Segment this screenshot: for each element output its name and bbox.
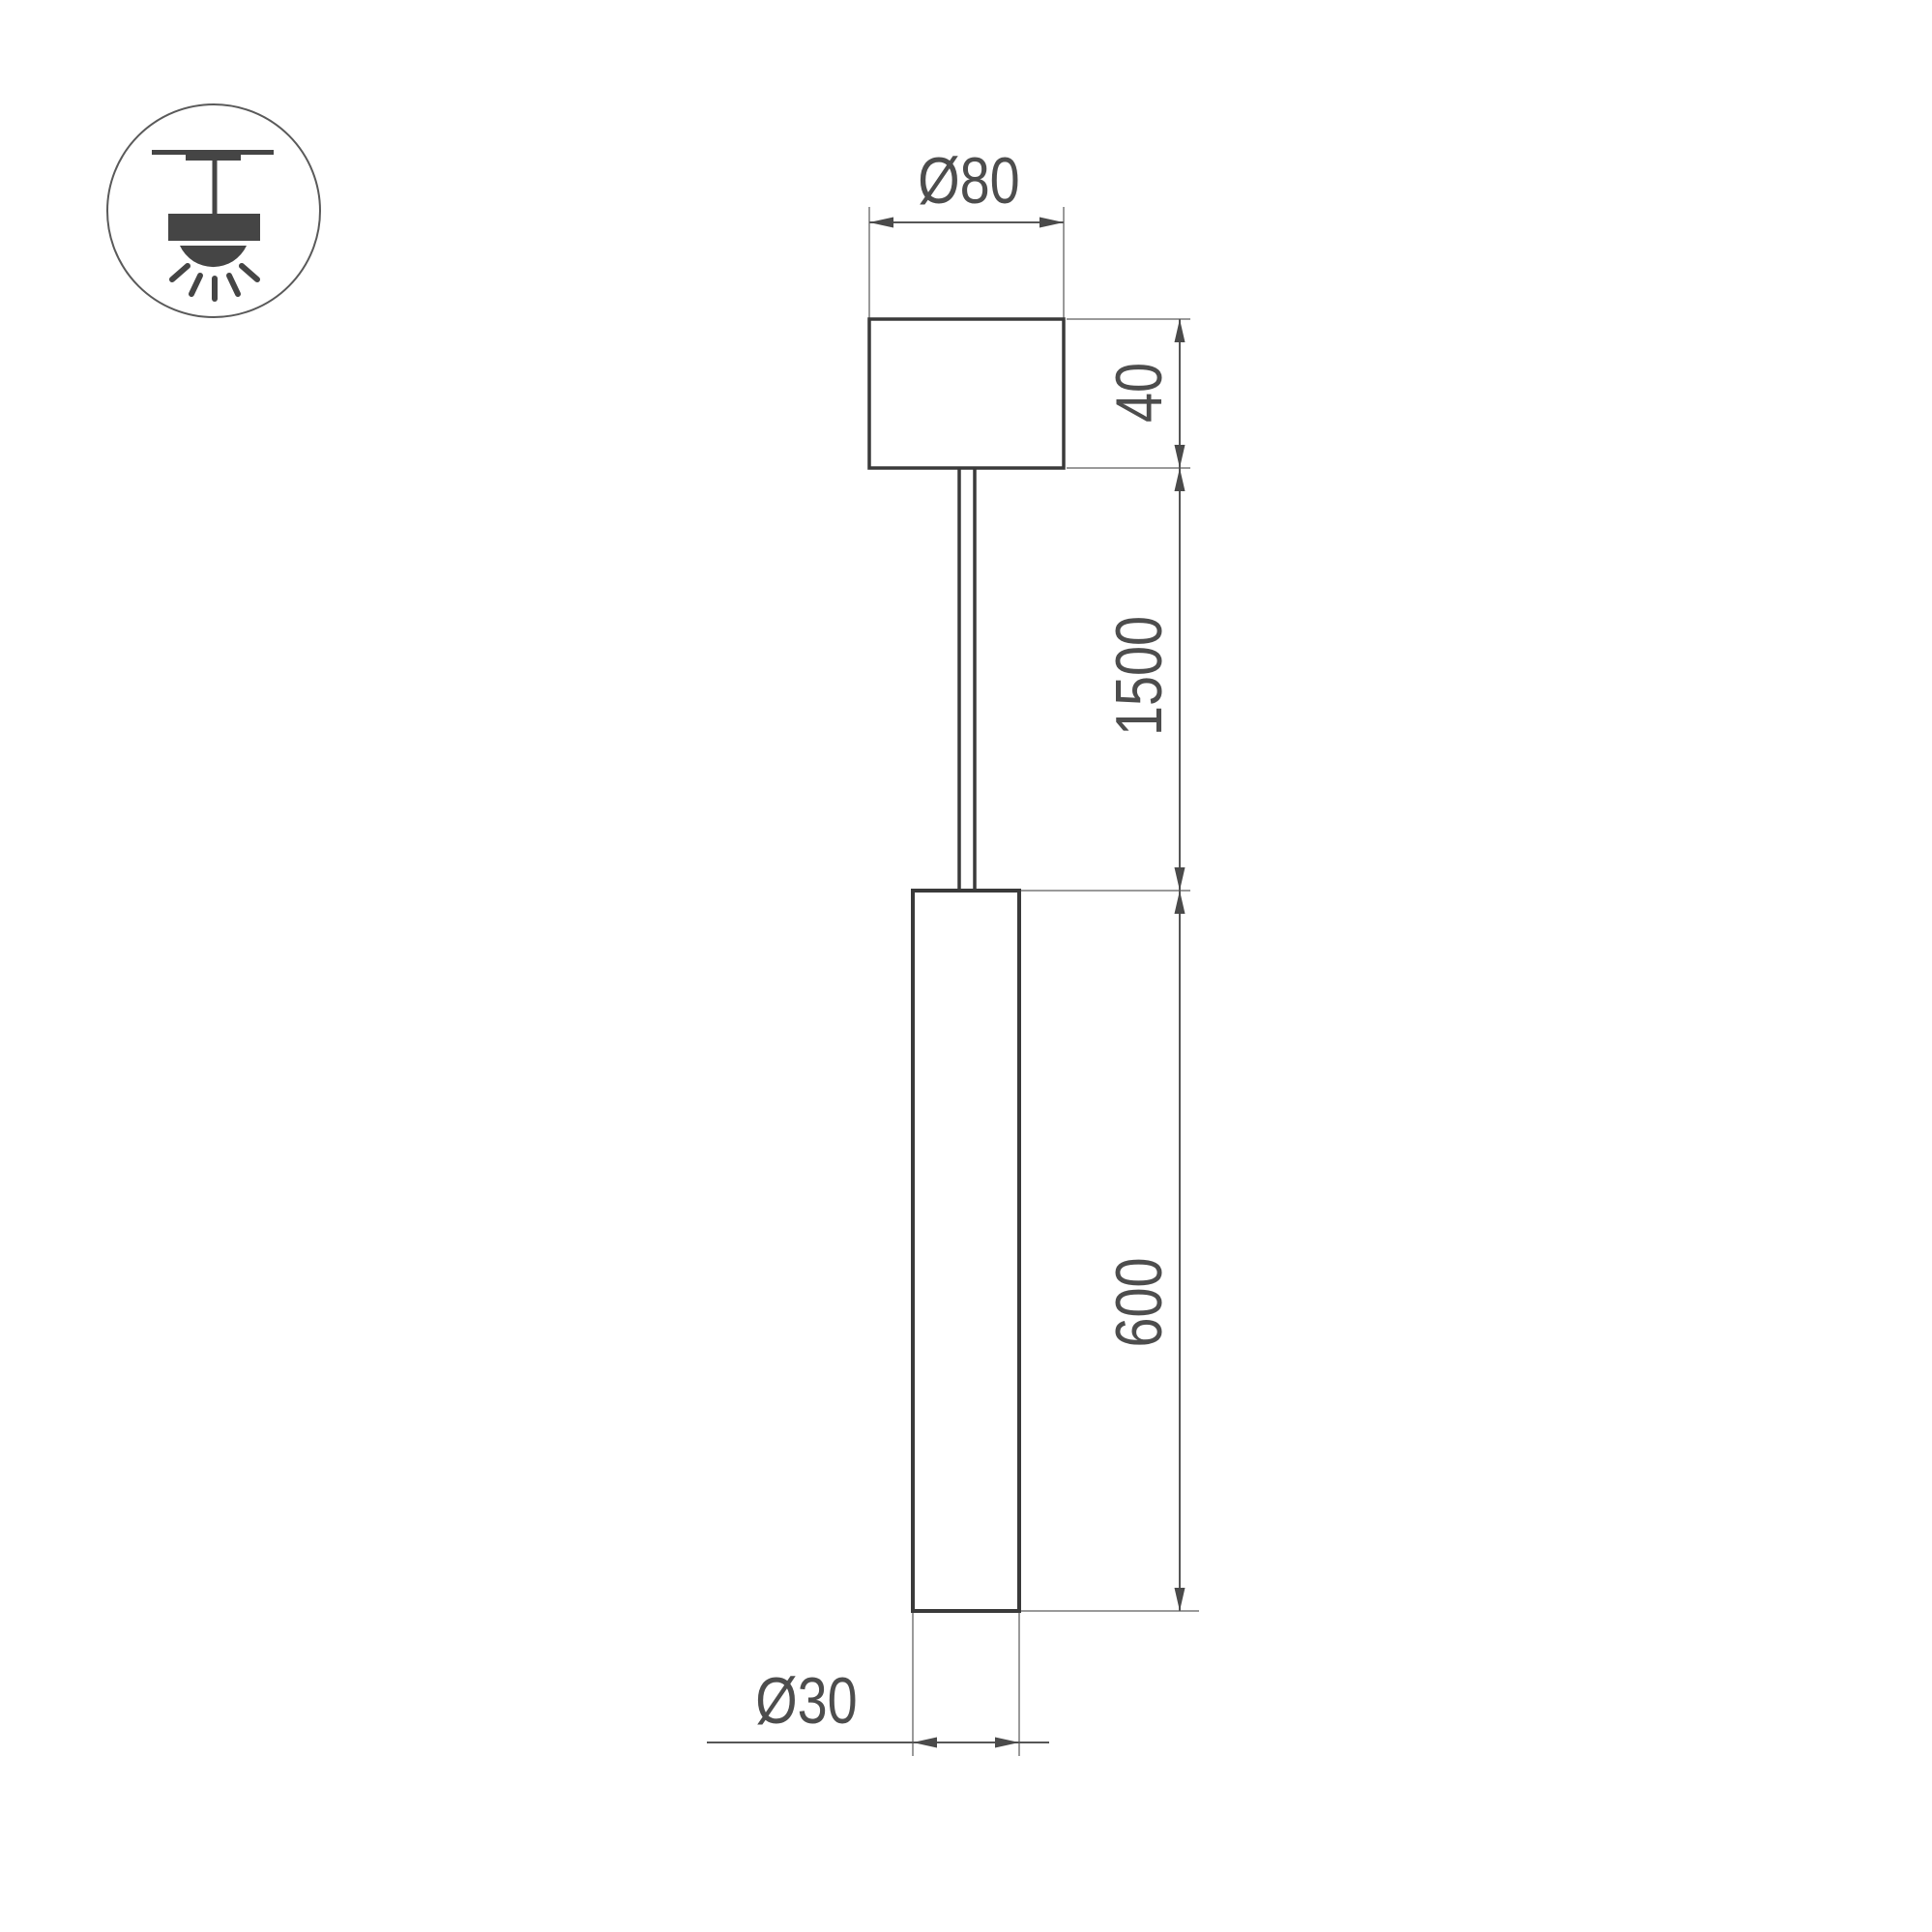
arrow-tube-len-bottom <box>1175 1588 1186 1611</box>
dimension-label-suspension-length: 1500 <box>1101 616 1177 736</box>
arrow-canopy-dia-right <box>1039 218 1064 228</box>
dimension-label-tube-length: 600 <box>1101 1257 1177 1347</box>
dimension-label-canopy-diameter: Ø80 <box>918 143 1019 219</box>
arrow-suspension-top <box>1175 468 1186 491</box>
luminaire-outline <box>869 319 1064 1611</box>
arrow-tube-dia-left <box>913 1738 937 1748</box>
arrow-tube-dia-right <box>995 1738 1019 1748</box>
arrow-canopy-h-top <box>1175 319 1186 342</box>
drawing-canvas: Ø80 40 1500 600 Ø30 <box>0 0 1932 1932</box>
canopy-body <box>869 319 1064 468</box>
tube-body <box>913 891 1019 1611</box>
luminaire-dimension-drawing <box>0 0 1932 1932</box>
arrow-canopy-dia-left <box>869 218 893 228</box>
arrow-tube-len-top <box>1175 891 1186 914</box>
arrow-suspension-bottom <box>1175 867 1186 891</box>
dimension-label-tube-diameter: Ø30 <box>755 1663 857 1739</box>
arrow-canopy-h-bottom <box>1175 445 1186 468</box>
dimension-label-canopy-height: 40 <box>1101 363 1177 423</box>
